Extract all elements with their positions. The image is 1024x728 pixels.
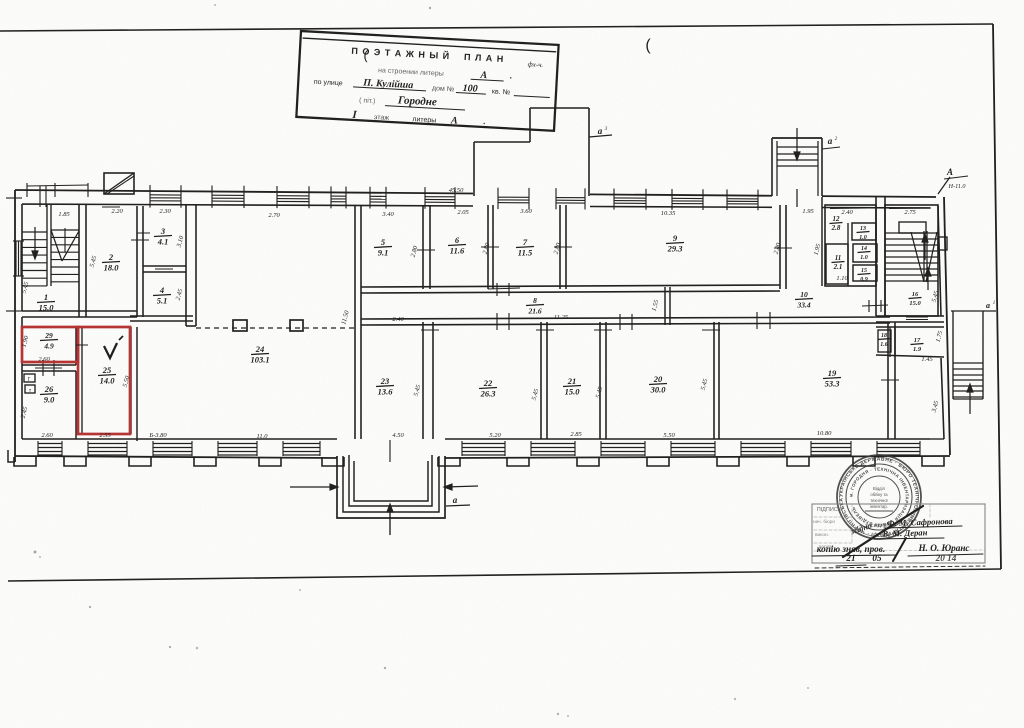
svg-text:Г: Г — [28, 377, 31, 383]
svg-text:9.1: 9.1 — [378, 248, 389, 258]
svg-text:1.0: 1.0 — [859, 235, 867, 241]
svg-text:Н-11.0: Н-11.0 — [948, 183, 967, 190]
svg-text:2.60: 2.60 — [41, 432, 53, 439]
svg-text:литеры: литеры — [412, 116, 436, 124]
svg-text:8: 8 — [533, 296, 537, 305]
svg-text:1.0: 1.0 — [860, 255, 868, 261]
svg-text:інвентар.: інвентар. — [870, 504, 888, 509]
svg-text:11.25: 11.25 — [554, 314, 569, 321]
svg-text:103.1: 103.1 — [250, 355, 269, 365]
svg-text:2.55: 2.55 — [99, 432, 111, 439]
svg-text:технічної: технічної — [870, 498, 888, 503]
svg-text:3.40: 3.40 — [381, 211, 394, 218]
svg-text:10.80: 10.80 — [817, 430, 832, 437]
svg-text:22: 22 — [483, 378, 493, 388]
svg-text:1.9: 1.9 — [913, 346, 922, 353]
svg-text:( піт.): ( піт.) — [359, 96, 376, 105]
svg-text:12: 12 — [833, 215, 841, 223]
svg-text:а: а — [453, 495, 458, 505]
svg-text:21: 21 — [845, 553, 855, 563]
svg-text:13: 13 — [860, 226, 866, 232]
svg-text:фх-ч.: фх-ч. — [528, 60, 544, 69]
svg-text:14.0: 14.0 — [100, 376, 116, 386]
svg-text:13.6: 13.6 — [378, 387, 394, 397]
svg-text:1.6: 1.6 — [880, 342, 888, 348]
svg-text:ПІДПИСИ:: ПІДПИСИ: — [817, 507, 844, 513]
svg-text:11.6: 11.6 — [450, 246, 465, 256]
svg-text:10.35: 10.35 — [661, 210, 676, 217]
svg-text:1.95: 1.95 — [802, 208, 814, 215]
svg-text:Н. О. Юранс: Н. О. Юранс — [917, 543, 969, 553]
svg-text:15: 15 — [861, 268, 867, 274]
svg-text:45.50: 45.50 — [449, 187, 464, 194]
svg-text:18.0: 18.0 — [104, 263, 120, 273]
svg-text:Б-3.80: Б-3.80 — [148, 432, 167, 439]
svg-text:24: 24 — [255, 344, 265, 354]
svg-text:1.10: 1.10 — [836, 275, 848, 282]
svg-text:5.20: 5.20 — [489, 432, 501, 439]
svg-text:21.6: 21.6 — [527, 307, 541, 316]
svg-text:1: 1 — [993, 301, 996, 306]
svg-text:3: 3 — [160, 226, 166, 236]
svg-text:20 14: 20 14 — [935, 553, 957, 563]
svg-text:29.3: 29.3 — [667, 244, 684, 254]
svg-text:4.9: 4.9 — [43, 342, 54, 351]
svg-text:4: 4 — [159, 285, 164, 295]
svg-text:4.50: 4.50 — [392, 432, 404, 439]
svg-text:0.9: 0.9 — [860, 277, 868, 283]
svg-text:а: а — [828, 136, 833, 146]
svg-text:29: 29 — [44, 331, 53, 340]
svg-text:21: 21 — [567, 376, 577, 386]
svg-text:1: 1 — [44, 292, 48, 302]
svg-text:30.0: 30.0 — [650, 385, 667, 395]
svg-text:19: 19 — [828, 368, 837, 378]
svg-text:викон.: викон. — [815, 533, 829, 538]
svg-text:15.0: 15.0 — [565, 387, 581, 397]
svg-text:25: 25 — [102, 365, 112, 375]
svg-text:1.45: 1.45 — [921, 356, 933, 363]
svg-text:15.0: 15.0 — [39, 303, 55, 313]
svg-text:33.4: 33.4 — [796, 301, 810, 310]
svg-text:а: а — [598, 126, 603, 136]
svg-text:53.3: 53.3 — [825, 379, 841, 389]
svg-text:(: ( — [645, 37, 651, 54]
svg-text:2.1: 2.1 — [833, 263, 843, 271]
svg-text:4.1: 4.1 — [157, 237, 169, 247]
svg-text:2.40: 2.40 — [392, 316, 404, 323]
svg-text:26.3: 26.3 — [480, 389, 497, 399]
svg-text:5.1: 5.1 — [157, 296, 168, 306]
svg-text:2.75: 2.75 — [904, 209, 916, 216]
svg-text:2.85: 2.85 — [570, 431, 582, 438]
svg-text:16: 16 — [912, 291, 919, 298]
svg-text:2.05: 2.05 — [457, 209, 469, 216]
svg-text:9.0: 9.0 — [44, 395, 55, 405]
svg-text:2.60: 2.60 — [38, 356, 50, 363]
svg-text:26: 26 — [44, 384, 54, 394]
svg-text:11.0: 11.0 — [257, 433, 269, 440]
svg-text:20: 20 — [653, 374, 663, 384]
svg-text:11: 11 — [835, 254, 842, 262]
svg-text:кв. №: кв. № — [492, 88, 511, 96]
svg-text:А: А — [946, 167, 953, 177]
svg-text:обліку та: обліку та — [870, 492, 888, 497]
svg-text:18: 18 — [881, 333, 887, 339]
svg-text:2.20: 2.20 — [111, 208, 123, 215]
svg-text:2: 2 — [108, 252, 114, 262]
svg-text:11.5: 11.5 — [518, 248, 533, 258]
svg-text:23: 23 — [380, 376, 390, 386]
svg-text:3.60: 3.60 — [519, 208, 532, 215]
svg-text:05: 05 — [872, 553, 882, 563]
svg-text:нач. бюро: нач. бюро — [813, 519, 835, 525]
svg-text:15.0: 15.0 — [909, 300, 921, 307]
svg-text:Відділ: Відділ — [873, 486, 886, 491]
svg-text:дом №: дом № — [432, 85, 455, 93]
svg-text:этаж: этаж — [374, 114, 390, 122]
svg-text:2.40: 2.40 — [841, 209, 853, 216]
svg-text:14: 14 — [861, 246, 867, 252]
svg-text:2.70: 2.70 — [268, 212, 280, 219]
svg-text:10: 10 — [800, 290, 808, 299]
svg-text:а: а — [986, 301, 990, 310]
svg-text:2.30: 2.30 — [159, 208, 171, 215]
svg-text:1.85: 1.85 — [58, 211, 70, 218]
svg-text:17: 17 — [914, 337, 921, 344]
svg-text:5.50: 5.50 — [663, 432, 675, 439]
svg-text:2.8: 2.8 — [831, 224, 841, 232]
